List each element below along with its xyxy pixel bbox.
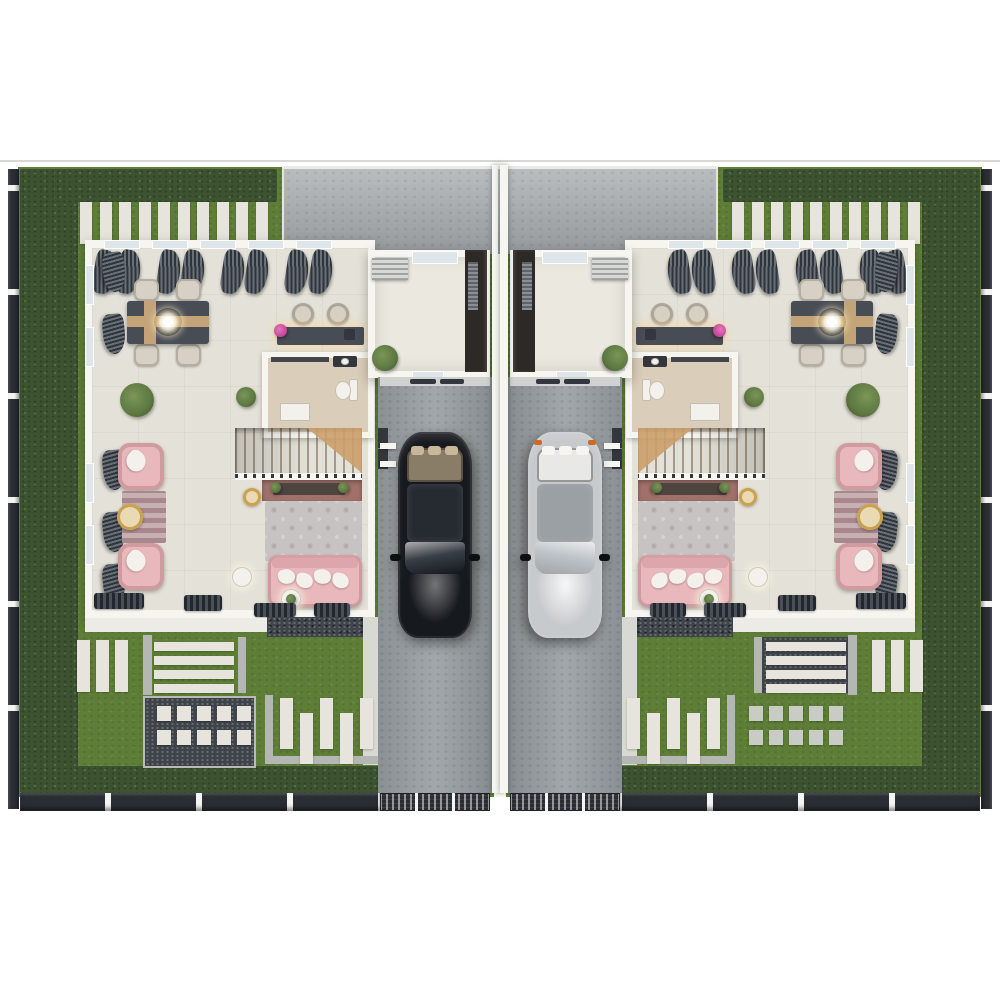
side-mirror <box>390 554 401 561</box>
rear-gate <box>380 793 490 811</box>
garden-slab <box>96 640 109 692</box>
hedge-left <box>20 169 78 791</box>
shrub <box>602 345 628 371</box>
coffee-table <box>857 504 883 530</box>
path-band <box>143 635 152 695</box>
stepping-stone <box>236 202 248 244</box>
garden-panel-stripes <box>762 637 848 693</box>
paver-square <box>157 706 171 721</box>
stepping-stone <box>908 202 920 244</box>
window <box>812 240 848 249</box>
window <box>906 463 915 503</box>
boundary-wall <box>500 165 508 793</box>
paver-square <box>217 730 231 745</box>
top-divider-line <box>0 160 1000 162</box>
stepping-stone <box>119 202 131 244</box>
unit-left <box>8 165 500 813</box>
sink <box>341 358 349 365</box>
stepping-stone <box>752 202 764 244</box>
stepping-stone <box>771 202 783 244</box>
stripe-paver <box>766 656 846 665</box>
window <box>248 240 284 249</box>
paver-square <box>809 730 823 745</box>
path-band <box>754 637 762 693</box>
window <box>85 327 94 367</box>
bar-stool <box>686 303 708 325</box>
headrest <box>559 446 572 455</box>
indoor-plant <box>120 383 154 417</box>
curtain-mat <box>184 595 222 611</box>
perimeter-fence-side <box>981 169 992 809</box>
window <box>906 525 915 565</box>
stripe-paver <box>154 670 234 679</box>
gravel-bed <box>267 617 363 637</box>
dining-chair <box>799 344 824 366</box>
hedge-top <box>723 169 945 202</box>
garden-slab <box>77 640 90 692</box>
headrest <box>411 446 424 455</box>
flower-vase <box>274 324 287 337</box>
wall-shelf <box>380 443 396 449</box>
gold-side-table <box>739 488 757 506</box>
window <box>716 240 752 249</box>
stripe-paver <box>154 656 234 665</box>
console-plant <box>651 482 662 493</box>
damask-rug <box>265 501 362 561</box>
paver-square <box>829 706 843 721</box>
curtain-mat <box>778 595 816 611</box>
path-band <box>238 637 246 693</box>
rear-gate <box>510 793 620 811</box>
indoor-plant <box>744 387 764 407</box>
garden-slab <box>910 640 923 692</box>
chandelier <box>818 308 846 336</box>
perimeter-fence-bottom <box>620 793 980 811</box>
curtain-mat <box>94 593 144 609</box>
stepping-stone <box>888 202 900 244</box>
coffee-machine <box>344 329 355 340</box>
window <box>152 240 188 249</box>
key-paver <box>300 713 313 764</box>
paver-square <box>749 706 763 721</box>
drain-slot <box>440 379 464 384</box>
window <box>296 240 332 249</box>
bar-stool <box>292 303 314 325</box>
sofa-back <box>642 555 728 568</box>
dining-chair <box>176 344 201 366</box>
paver-square <box>769 730 783 745</box>
indoor-plant <box>846 383 880 417</box>
drain-slot <box>564 379 590 384</box>
key-paver <box>687 713 700 764</box>
garden-panel-keys <box>265 695 378 764</box>
indicator-light <box>534 440 542 445</box>
gate-post <box>582 793 585 811</box>
stepping-stone <box>217 202 229 244</box>
key-paver <box>340 713 353 764</box>
dining-chair <box>134 344 159 366</box>
garden-panel-grid <box>744 696 857 768</box>
window <box>860 240 896 249</box>
window <box>906 265 915 305</box>
transom-window <box>412 251 458 264</box>
stepping-stone <box>158 202 170 244</box>
curtain-mat <box>254 603 296 617</box>
window <box>668 240 704 249</box>
stripe-paver <box>154 684 234 693</box>
bar-stool <box>651 303 673 325</box>
stepping-stone <box>849 202 861 244</box>
toilet-bowl <box>335 381 351 400</box>
toilet-bowl <box>649 381 665 400</box>
dining-chair <box>841 279 866 301</box>
tv-console <box>655 483 727 495</box>
paver-square <box>197 730 211 745</box>
sink <box>651 358 659 365</box>
flower-vase <box>713 324 726 337</box>
gate-post <box>415 793 418 811</box>
shower-glass-partition <box>671 357 729 362</box>
hedge-bottom <box>20 766 382 793</box>
stripe-paver <box>766 642 846 651</box>
floor-trim <box>638 473 765 480</box>
window <box>764 240 800 249</box>
headrest <box>576 446 589 455</box>
gold-side-table <box>243 488 261 506</box>
windshield <box>405 542 465 574</box>
window <box>906 327 915 367</box>
console-plant <box>338 482 349 493</box>
dining-chair <box>134 279 159 301</box>
dining-chair <box>176 279 201 301</box>
floor-plan-render <box>0 0 1000 1000</box>
unit-right <box>500 165 992 813</box>
ac-unit <box>372 258 408 280</box>
stripe-paver <box>766 684 846 693</box>
side-mirror <box>520 554 531 561</box>
indoor-plant <box>236 387 256 407</box>
drain-slot <box>410 379 436 384</box>
damask-rug <box>638 501 735 561</box>
lamp-table <box>232 567 252 587</box>
boundary-wall <box>492 165 500 793</box>
car-roof <box>537 484 593 542</box>
garden-slab <box>891 640 904 692</box>
side-mirror <box>469 554 480 561</box>
garden-panel-stripes <box>152 637 238 693</box>
coffee-machine <box>645 329 656 340</box>
hood <box>531 574 599 634</box>
side-mirror <box>599 554 610 561</box>
wall-shelf <box>604 461 620 467</box>
stepping-stone <box>178 202 190 244</box>
hedge-bottom <box>618 766 980 793</box>
sofa-back <box>272 555 358 568</box>
wall-shelf <box>380 461 396 467</box>
door-glass-blind <box>522 262 532 310</box>
window <box>200 240 236 249</box>
garden-slab <box>115 640 128 692</box>
gate-post <box>545 793 548 811</box>
car <box>398 432 472 638</box>
tv-console <box>273 483 345 495</box>
stripe-paver <box>766 670 846 679</box>
chandelier <box>154 308 182 336</box>
console-plant <box>270 482 281 493</box>
perimeter-fence-side <box>8 169 19 809</box>
dining-chair <box>841 344 866 366</box>
key-paver <box>647 713 660 764</box>
console-plant <box>719 482 730 493</box>
window <box>85 525 94 565</box>
shower-glass-partition <box>271 357 329 362</box>
window <box>85 463 94 503</box>
paver-square <box>809 706 823 721</box>
paver-square <box>789 706 803 721</box>
curtain-mat <box>856 593 906 609</box>
path-band <box>848 635 857 695</box>
paver-square <box>157 730 171 745</box>
stepping-stone <box>80 202 92 244</box>
hood <box>401 574 469 634</box>
garden-panel-grid <box>143 696 256 768</box>
shower-tray <box>690 403 720 421</box>
transom-window <box>542 251 588 264</box>
key-paver <box>320 698 333 749</box>
key-paver <box>280 698 293 749</box>
key-paver <box>360 698 373 749</box>
coffee-table <box>117 504 143 530</box>
stepping-stone <box>256 202 268 244</box>
headrest <box>542 446 555 455</box>
windshield <box>535 542 595 574</box>
stepping-stone <box>830 202 842 244</box>
paver-square <box>829 730 843 745</box>
paver-square <box>177 706 191 721</box>
paver-square <box>177 730 191 745</box>
ac-unit <box>592 258 628 280</box>
bar-stool <box>327 303 349 325</box>
window <box>104 240 140 249</box>
gate-post <box>452 793 455 811</box>
shower-tray <box>280 403 310 421</box>
door-glass-blind <box>468 262 478 310</box>
headrest <box>428 446 441 455</box>
stepping-stone <box>732 202 744 244</box>
paver-square <box>769 706 783 721</box>
indicator-light <box>588 440 596 445</box>
drain-slot <box>536 379 560 384</box>
headrest <box>445 446 458 455</box>
lamp-table <box>748 567 768 587</box>
shrub <box>372 345 398 371</box>
wall-shelf <box>604 443 620 449</box>
paver-square <box>237 730 251 745</box>
hedge-right <box>922 169 980 791</box>
curtain-mat <box>314 603 350 617</box>
window <box>85 265 94 305</box>
stepping-stone <box>810 202 822 244</box>
dining-chair <box>799 279 824 301</box>
stepping-stone <box>869 202 881 244</box>
stripe-paver <box>154 642 234 651</box>
key-paver <box>627 698 640 749</box>
key-paver <box>707 698 720 749</box>
car <box>528 432 602 638</box>
curtain-mat <box>704 603 746 617</box>
key-paver <box>667 698 680 749</box>
paver-square <box>197 706 211 721</box>
garden-slab <box>872 640 885 692</box>
curtain-mat <box>650 603 686 617</box>
paver-square <box>217 706 231 721</box>
gravel-bed <box>637 617 733 637</box>
stepping-stone <box>197 202 209 244</box>
stepping-stone <box>100 202 112 244</box>
stepping-stone <box>791 202 803 244</box>
floor-trim <box>235 473 362 480</box>
stepping-stone <box>139 202 151 244</box>
hedge-top <box>55 169 277 202</box>
perimeter-fence-bottom <box>20 793 380 811</box>
garden-panel-keys <box>622 695 735 764</box>
paver-square <box>789 730 803 745</box>
paver-square <box>749 730 763 745</box>
car-roof <box>407 484 463 542</box>
paver-square <box>237 706 251 721</box>
